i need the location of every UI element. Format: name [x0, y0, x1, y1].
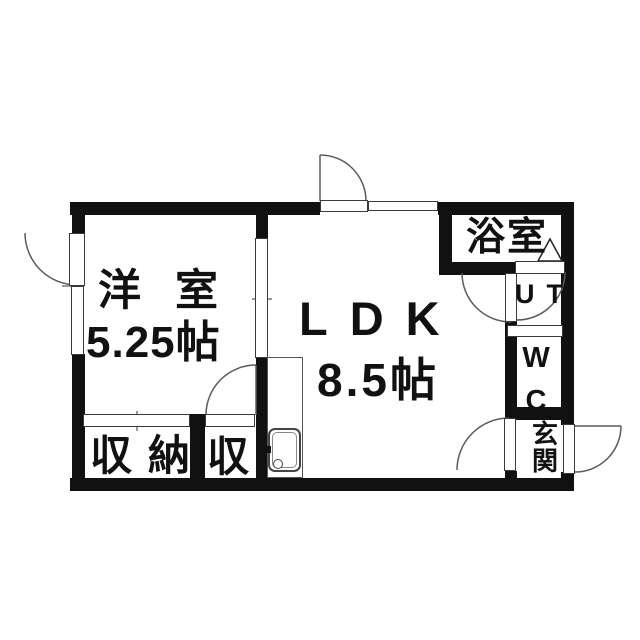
- sink-drain-icon: [273, 459, 283, 469]
- balcony-door-swing-arc: [320, 155, 366, 201]
- balcony-door-leaf: [320, 200, 368, 212]
- room-size-western: 5.25帖: [86, 321, 221, 365]
- utility-door-swing-arc: [462, 273, 511, 322]
- sub-closet-door-leaf: [205, 414, 255, 427]
- bath-door-leaf: [515, 261, 565, 274]
- left-casement-window-leaf: [69, 233, 85, 286]
- room-label-ldk: LDK: [299, 295, 462, 342]
- wall-top-right: [438, 202, 574, 215]
- room-label-sub-closet: 収: [207, 436, 249, 478]
- entrance-hall-door-leaf: [504, 418, 516, 471]
- wall-room-divider-upper: [256, 202, 268, 239]
- sink-faucet-icon: [263, 446, 271, 453]
- wall-right-upper: [561, 202, 574, 425]
- wall-ldk-column-low: [505, 471, 517, 491]
- front-door-leaf: [563, 424, 575, 474]
- left-window: [71, 286, 84, 355]
- room-label-western: 洋室: [98, 270, 252, 313]
- wall-left-upper: [72, 202, 85, 234]
- room-label-utility: UT: [515, 281, 575, 308]
- room-label-bath: 浴室: [466, 218, 548, 257]
- room-size-ldk: 8.5帖: [317, 357, 439, 403]
- wall-bottom: [70, 478, 574, 491]
- wall-top-left: [70, 202, 320, 215]
- room-divider-sliding-door: [255, 238, 268, 358]
- utility-wc-door-leaf: [507, 325, 563, 337]
- room-label-closet: 収納: [90, 435, 206, 477]
- floor-plan: 洋室 5.25帖 LDK 8.5帖 浴室 UT WC 玄関 収納 収: [0, 0, 640, 640]
- sub-closet-door-swing-arc: [206, 365, 256, 415]
- room-label-entrance: 玄関: [531, 421, 559, 475]
- entrance-hall-door-swing-arc: [457, 418, 509, 470]
- top-window: [368, 201, 438, 211]
- front-door-swing-arc: [575, 426, 621, 472]
- room-label-toilet: WC: [518, 337, 554, 423]
- closet-sliding-door: [83, 414, 190, 427]
